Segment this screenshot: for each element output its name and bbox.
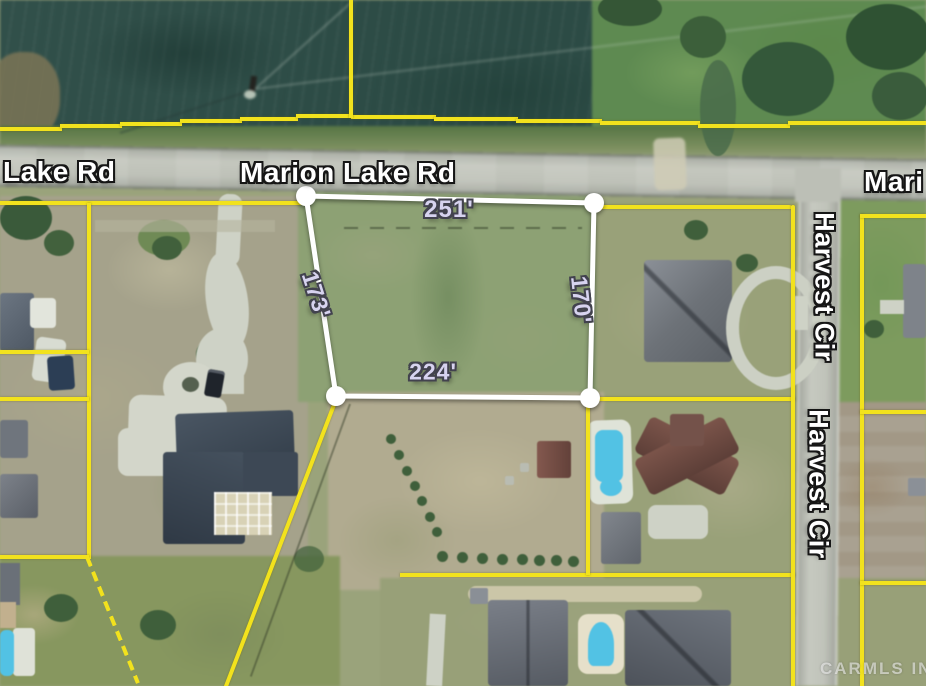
- dimension-label-east: 170': [565, 275, 597, 325]
- parcel-corner-marker: [584, 193, 604, 213]
- mls-watermark: CARMLS INC: [820, 659, 926, 679]
- dimension-label-north: 251': [424, 196, 474, 224]
- parcel-corner-marker: [326, 386, 346, 406]
- road-label-marion-lake-rd: Marion Lake Rd: [240, 157, 455, 189]
- road-label-harvest-cir-north: Harvest Cir: [809, 212, 840, 362]
- subject-parcel-outline: [0, 0, 926, 686]
- aerial-map[interactable]: 251' 173' 170' 224' Lake Rd Marion Lake …: [0, 0, 926, 686]
- parcel-corner-marker: [580, 388, 600, 408]
- parcel-corner-marker: [296, 186, 316, 206]
- dimension-label-south: 224': [409, 359, 457, 386]
- road-label-lake-rd: Lake Rd: [3, 156, 115, 188]
- road-label-harvest-cir-south: Harvest Cir: [803, 409, 834, 559]
- road-label-marion-clipped: Mari: [864, 166, 924, 198]
